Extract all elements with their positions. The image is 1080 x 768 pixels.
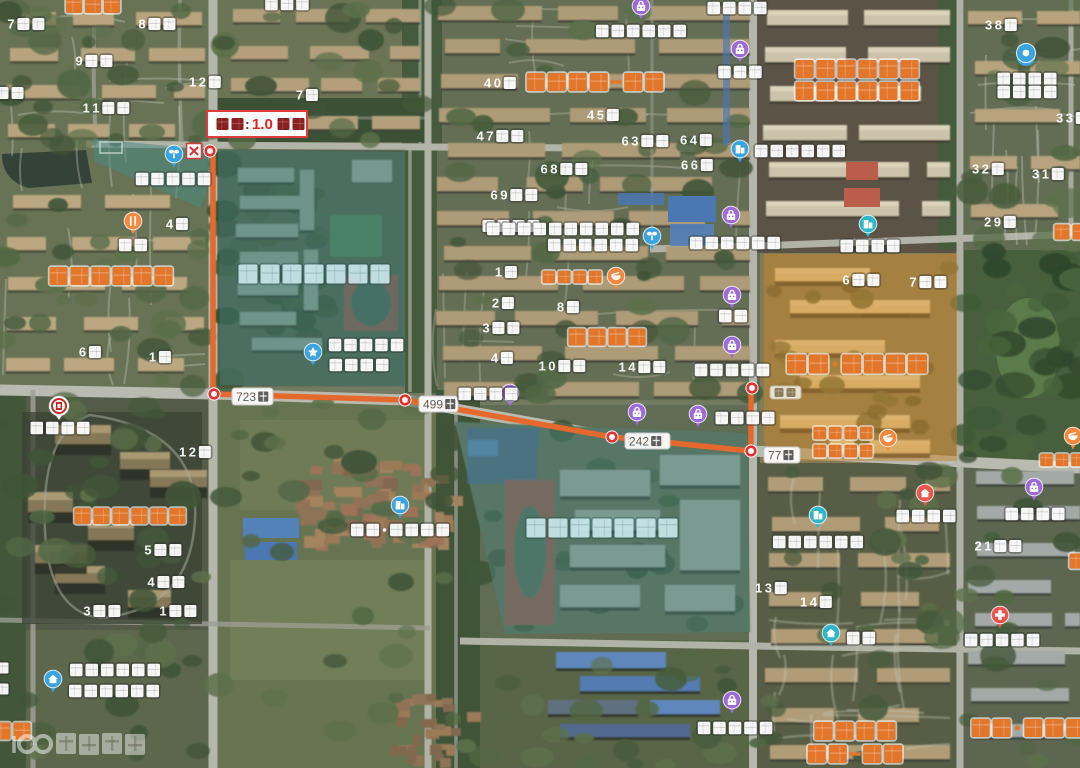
svg-text:8: 8 xyxy=(550,162,557,177)
svg-text:0: 0 xyxy=(494,76,501,91)
svg-text:4: 4 xyxy=(476,129,484,144)
svg-text:2: 2 xyxy=(974,539,981,554)
svg-text:8: 8 xyxy=(557,300,564,315)
svg-text:1: 1 xyxy=(179,445,186,460)
svg-text:6: 6 xyxy=(490,188,497,203)
svg-text:2: 2 xyxy=(199,75,206,90)
svg-text:8: 8 xyxy=(138,17,145,32)
svg-text:7: 7 xyxy=(909,275,916,290)
svg-text:7: 7 xyxy=(7,17,14,32)
svg-text:0: 0 xyxy=(548,359,555,374)
svg-text:77: 77 xyxy=(768,448,782,462)
svg-text:1: 1 xyxy=(800,595,807,610)
svg-text:3: 3 xyxy=(482,321,489,336)
svg-text:5: 5 xyxy=(597,108,604,123)
svg-text:1: 1 xyxy=(189,75,196,90)
svg-text:6: 6 xyxy=(691,158,698,173)
svg-text:3: 3 xyxy=(1056,111,1063,126)
svg-text:6: 6 xyxy=(540,162,547,177)
svg-text:4: 4 xyxy=(166,217,174,232)
svg-text:3: 3 xyxy=(631,134,638,149)
svg-text:3: 3 xyxy=(83,604,90,619)
svg-text:3: 3 xyxy=(1066,111,1073,126)
svg-text:7: 7 xyxy=(296,88,303,103)
svg-text:5: 5 xyxy=(144,543,151,558)
svg-text:242: 242 xyxy=(629,434,649,448)
svg-text:1: 1 xyxy=(755,581,762,596)
svg-text::: : xyxy=(245,116,250,132)
svg-text:4: 4 xyxy=(587,108,595,123)
svg-text:1: 1 xyxy=(92,101,99,116)
svg-text:4: 4 xyxy=(628,360,636,375)
svg-text:9: 9 xyxy=(75,54,82,69)
svg-text:2: 2 xyxy=(492,296,499,311)
svg-text:9: 9 xyxy=(500,188,507,203)
svg-text:1: 1 xyxy=(1042,167,1049,182)
svg-text:9: 9 xyxy=(994,215,1001,230)
svg-text:499: 499 xyxy=(423,397,443,411)
svg-text:4: 4 xyxy=(147,575,155,590)
svg-text:1: 1 xyxy=(149,350,156,365)
svg-text:3: 3 xyxy=(985,18,992,33)
svg-text:1: 1 xyxy=(495,265,502,280)
svg-text:7: 7 xyxy=(486,129,493,144)
svg-text:2: 2 xyxy=(984,215,991,230)
svg-text:6: 6 xyxy=(621,134,628,149)
svg-text:4: 4 xyxy=(484,76,492,91)
svg-text:723: 723 xyxy=(236,390,256,404)
svg-text:1: 1 xyxy=(82,101,89,116)
svg-text:6: 6 xyxy=(680,133,687,148)
svg-text:1: 1 xyxy=(984,539,991,554)
svg-text:6: 6 xyxy=(842,273,849,288)
svg-text:4: 4 xyxy=(491,351,499,366)
svg-text:1: 1 xyxy=(618,360,625,375)
svg-text:4: 4 xyxy=(810,595,818,610)
svg-text:1: 1 xyxy=(538,359,545,374)
svg-text:6: 6 xyxy=(681,158,688,173)
svg-text:3: 3 xyxy=(972,162,979,177)
svg-text:6: 6 xyxy=(79,345,86,360)
svg-text:2: 2 xyxy=(189,445,196,460)
svg-text:1: 1 xyxy=(159,604,166,619)
svg-text:3: 3 xyxy=(765,581,772,596)
svg-text:4: 4 xyxy=(690,133,698,148)
svg-text:8: 8 xyxy=(995,18,1002,33)
svg-text:2: 2 xyxy=(982,162,989,177)
svg-text:3: 3 xyxy=(1032,167,1039,182)
svg-text:1.0: 1.0 xyxy=(252,116,273,133)
